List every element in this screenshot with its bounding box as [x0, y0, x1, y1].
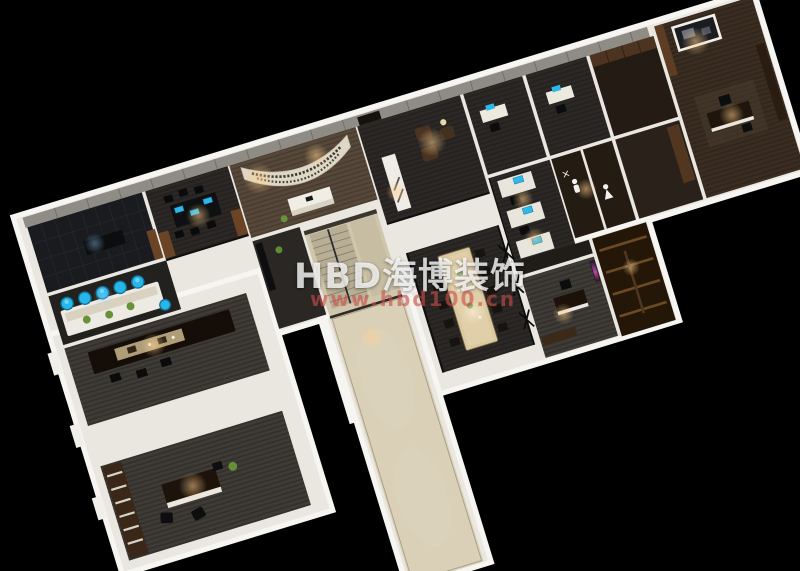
- render-canvas: HBD海博装饰 www.hbd100.cn: [0, 0, 800, 571]
- chair: [160, 512, 173, 523]
- floorplan-3d-render: [0, 0, 800, 571]
